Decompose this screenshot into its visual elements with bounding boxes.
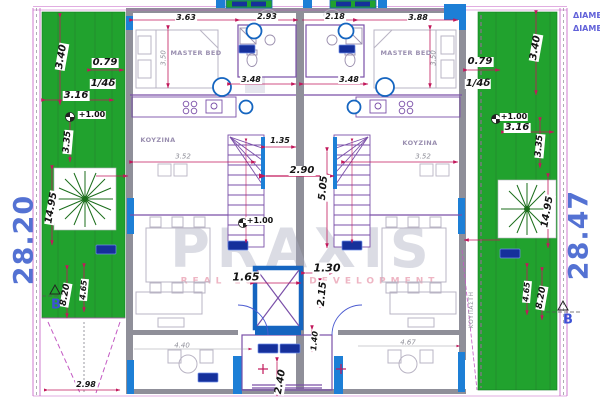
section-label-right: B — [563, 314, 573, 327]
dim-c215: 2.15 — [317, 280, 329, 307]
dim-right-340: 3.40 — [529, 34, 543, 62]
dim-left-465: 4.65 — [79, 279, 89, 301]
dim-c240: 2.40 — [274, 368, 288, 396]
floor-plan: { "watermark": { "title": "PRAXIS", "sub… — [0, 0, 600, 400]
top-dim-218: 2.18 — [324, 13, 346, 21]
dim-left-quarter: 1/4δ — [90, 79, 116, 89]
room-label-kitchen-left: KOYZINA — [140, 137, 175, 144]
corner-text-2: ΔΙΑΜΕΡΟ — [573, 25, 600, 33]
dim-kitchen-left: 3.52 — [175, 154, 191, 161]
dim-right-079: 0.79 — [467, 57, 494, 67]
dim-bottom-right: 4.67 — [400, 340, 416, 347]
level-center: +1.00 — [246, 217, 274, 225]
dim-c140: 1.40 — [310, 330, 320, 352]
dim-corridor-width: 2.90 — [289, 166, 316, 176]
room-label-master-left: MASTER BED — [170, 50, 221, 57]
top-dim-388: 3.88 — [407, 14, 429, 22]
dim-ramp: 2.98 — [75, 381, 97, 389]
dim-bed-left: 3.50 — [161, 50, 168, 66]
top-dim-293: 2.93 — [256, 13, 278, 21]
room-label-master-right: MASTER BED — [380, 50, 431, 57]
room-label-kitchen-right: KOYZINA — [402, 140, 437, 147]
corner-text-1: ΔΙΑΜΕΡΟ — [573, 12, 600, 20]
dim-stair-height: 5.05 — [318, 174, 330, 201]
level-right: +1.00 — [500, 113, 528, 121]
side-annotation: ΚΟΥΠΑΣΤΗ — [469, 292, 475, 329]
dim-c130: 1.30 — [312, 263, 341, 274]
section-label-left: B — [51, 299, 61, 312]
dim-left-079: 0.79 — [92, 58, 119, 68]
dim-right-1495: 14.95 — [540, 195, 556, 230]
dim-landing-right: 3.48 — [338, 76, 360, 84]
dim-bottom-left: 4.40 — [174, 343, 190, 350]
dim-left-1495: 14.95 — [44, 191, 60, 226]
dim-bed-right: 3.50 — [431, 50, 438, 66]
dim-right-335: 3.35 — [534, 134, 545, 159]
dim-landing-left: 3.48 — [240, 76, 262, 84]
top-dim-363: 3.63 — [175, 14, 197, 22]
level-left: +1.00 — [78, 111, 106, 119]
dim-right-quarter: 1/4δ — [465, 79, 491, 89]
dim-right-820: 8.20 — [535, 285, 548, 310]
dim-left-340: 3.40 — [55, 43, 69, 71]
labels: 28.20 3.40 0.79 1/4δ 3.16 +1.00 3.35 14.… — [0, 0, 600, 400]
dim-right-465: 4.65 — [522, 281, 532, 303]
dim-right-316: 3.16 — [504, 123, 531, 133]
dim-left-316: 3.16 — [63, 91, 90, 101]
overall-dim-right: 28.47 — [566, 190, 593, 280]
dim-elevator: 1.65 — [231, 272, 260, 283]
overall-dim-left: 28.20 — [11, 195, 38, 285]
dim-kitchen-right: 3.52 — [415, 154, 431, 161]
dim-corridor-top: 1.35 — [269, 137, 291, 145]
dim-left-820: 8.20 — [59, 282, 72, 307]
dim-left-335: 3.35 — [62, 130, 73, 155]
